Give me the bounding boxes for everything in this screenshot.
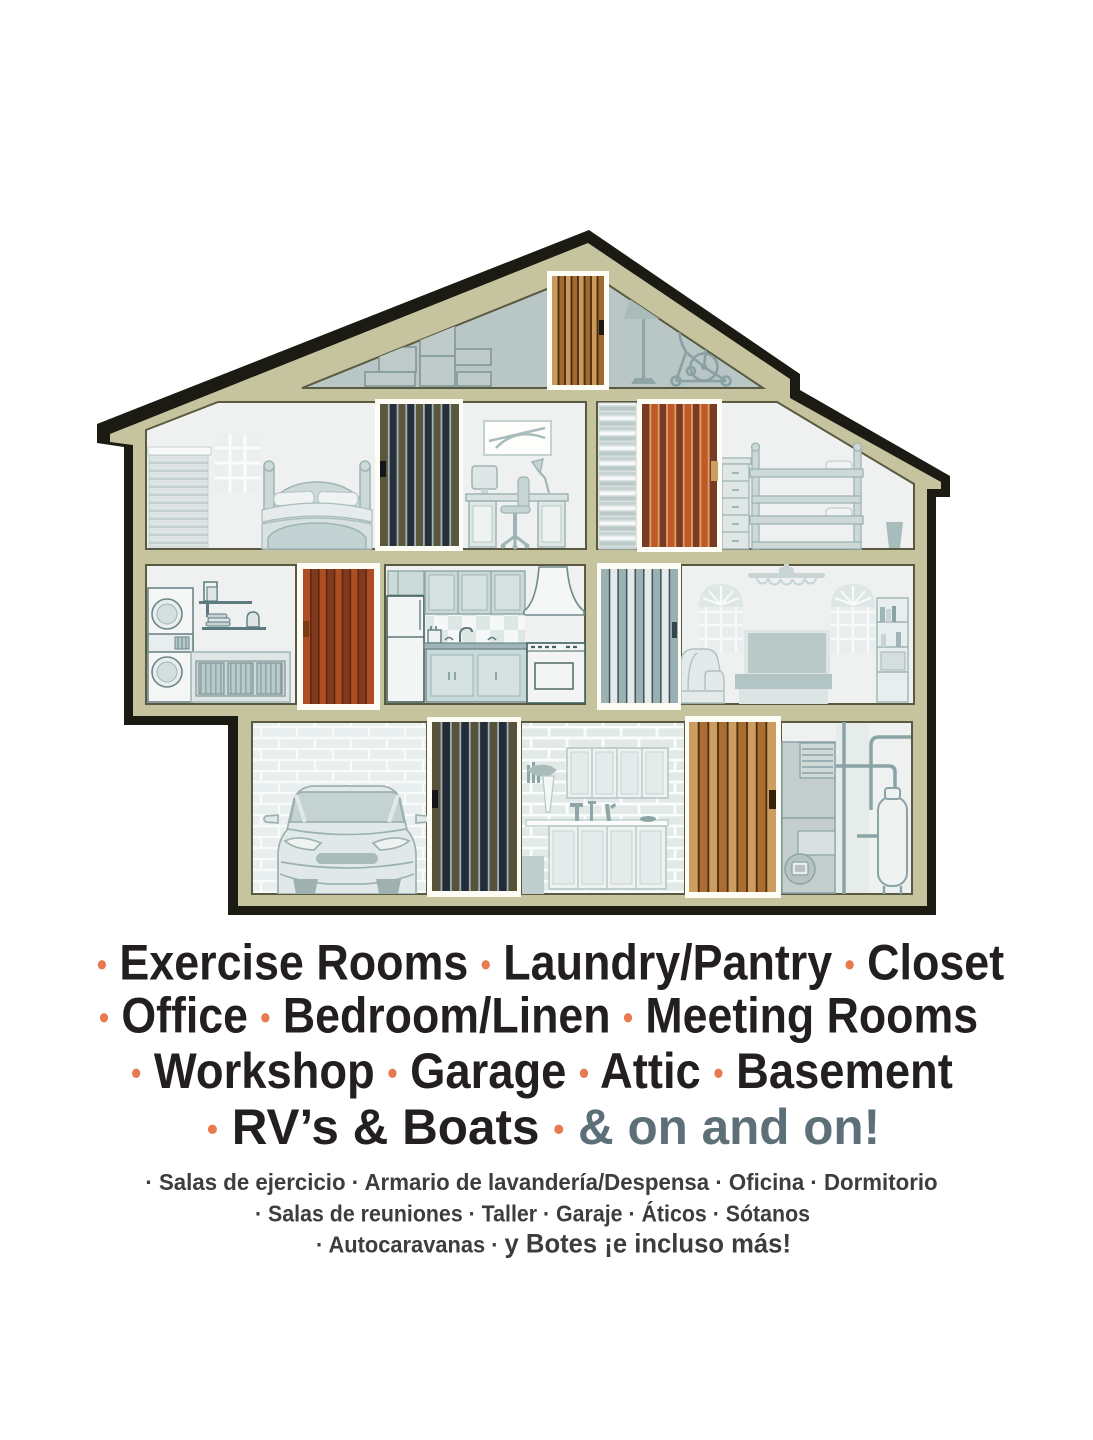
- svg-text:· Salas de ejercicio · Armario: · Salas de ejercicio · Armario de lavand…: [145, 1170, 937, 1195]
- svg-text:• Workshop • Garage • Attic •: • Workshop • Garage • Attic • Basement: [131, 1044, 953, 1100]
- svg-text:· Autocaravanas · y Botes ¡e i: · Autocaravanas · y Botes ¡e incluso más…: [316, 1228, 791, 1259]
- svg-text:• Office • Bedroom/Linen • Mee: • Office • Bedroom/Linen • Meeting Rooms: [99, 988, 978, 1044]
- svg-text:• Exercise Rooms • Laundry/Pan: • Exercise Rooms • Laundry/Pantry • Clos…: [97, 935, 1004, 991]
- svg-text:• RV’s & Boats • & on and on!: • RV’s & Boats • & on and on!: [207, 1099, 880, 1155]
- svg-text:· Salas de reuniones · Taller: · Salas de reuniones · Taller · Garaje ·…: [255, 1201, 810, 1227]
